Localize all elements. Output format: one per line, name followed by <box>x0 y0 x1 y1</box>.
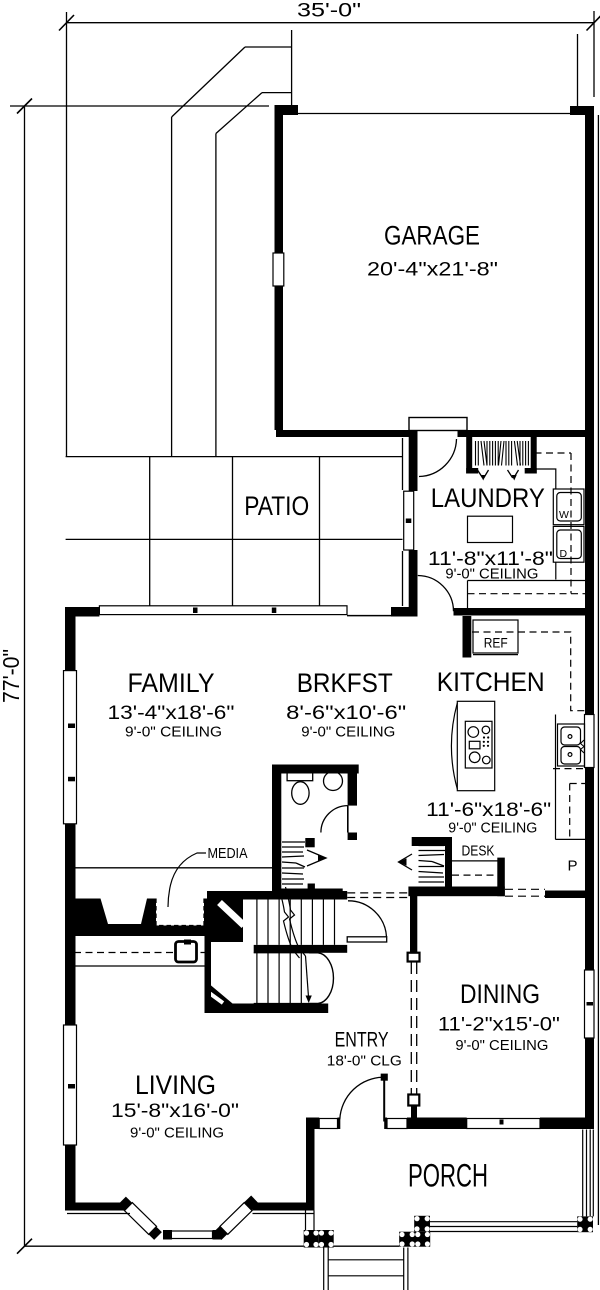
svg-text:13'-4"x18'-6": 13'-4"x18'-6" <box>108 703 235 724</box>
svg-text:DESK: DESK <box>462 843 495 860</box>
svg-text:77'-0": 77'-0" <box>0 649 24 703</box>
svg-text:35'-0": 35'-0" <box>297 1 361 22</box>
svg-text:KITCHEN: KITCHEN <box>437 667 545 697</box>
svg-text:FAMILY: FAMILY <box>128 668 215 698</box>
svg-text:LIVING: LIVING <box>135 1070 216 1100</box>
svg-text:ENTRY: ENTRY <box>335 1029 389 1052</box>
svg-text:9'-0" CEILING: 9'-0" CEILING <box>125 725 222 741</box>
svg-text:20'-4"x21'-8": 20'-4"x21'-8" <box>367 260 498 281</box>
svg-text:REF: REF <box>484 635 508 651</box>
svg-text:MEDIA: MEDIA <box>208 845 248 862</box>
svg-text:9'-0" CEILING: 9'-0" CEILING <box>130 1126 224 1142</box>
svg-text:P: P <box>568 858 578 875</box>
svg-text:9'-0" CEILING: 9'-0" CEILING <box>448 821 537 837</box>
svg-text:11'-6"x18'-6": 11'-6"x18'-6" <box>426 800 551 821</box>
svg-text:BRKFST: BRKFST <box>297 668 393 698</box>
svg-text:D: D <box>560 548 568 560</box>
svg-text:8'-6"x10'-6": 8'-6"x10'-6" <box>286 703 406 724</box>
svg-text:9'-0" CEILING: 9'-0" CEILING <box>445 567 538 583</box>
svg-text:W: W <box>559 509 569 521</box>
svg-text:18'-0" CLG: 18'-0" CLG <box>327 1054 402 1070</box>
svg-text:9'-0" CEILING: 9'-0" CEILING <box>455 1038 548 1054</box>
svg-text:11'-2"x15'-0": 11'-2"x15'-0" <box>438 1015 560 1036</box>
svg-text:LAUNDRY: LAUNDRY <box>431 483 545 513</box>
svg-text:15'-8"x16'-0": 15'-8"x16'-0" <box>111 1101 239 1122</box>
svg-text:9'-0" CEILING: 9'-0" CEILING <box>301 725 395 741</box>
svg-text:GARAGE: GARAGE <box>384 221 480 251</box>
svg-text:DINING: DINING <box>460 979 540 1009</box>
svg-text:PATIO: PATIO <box>244 491 309 521</box>
svg-text:PORCH: PORCH <box>408 1158 488 1194</box>
